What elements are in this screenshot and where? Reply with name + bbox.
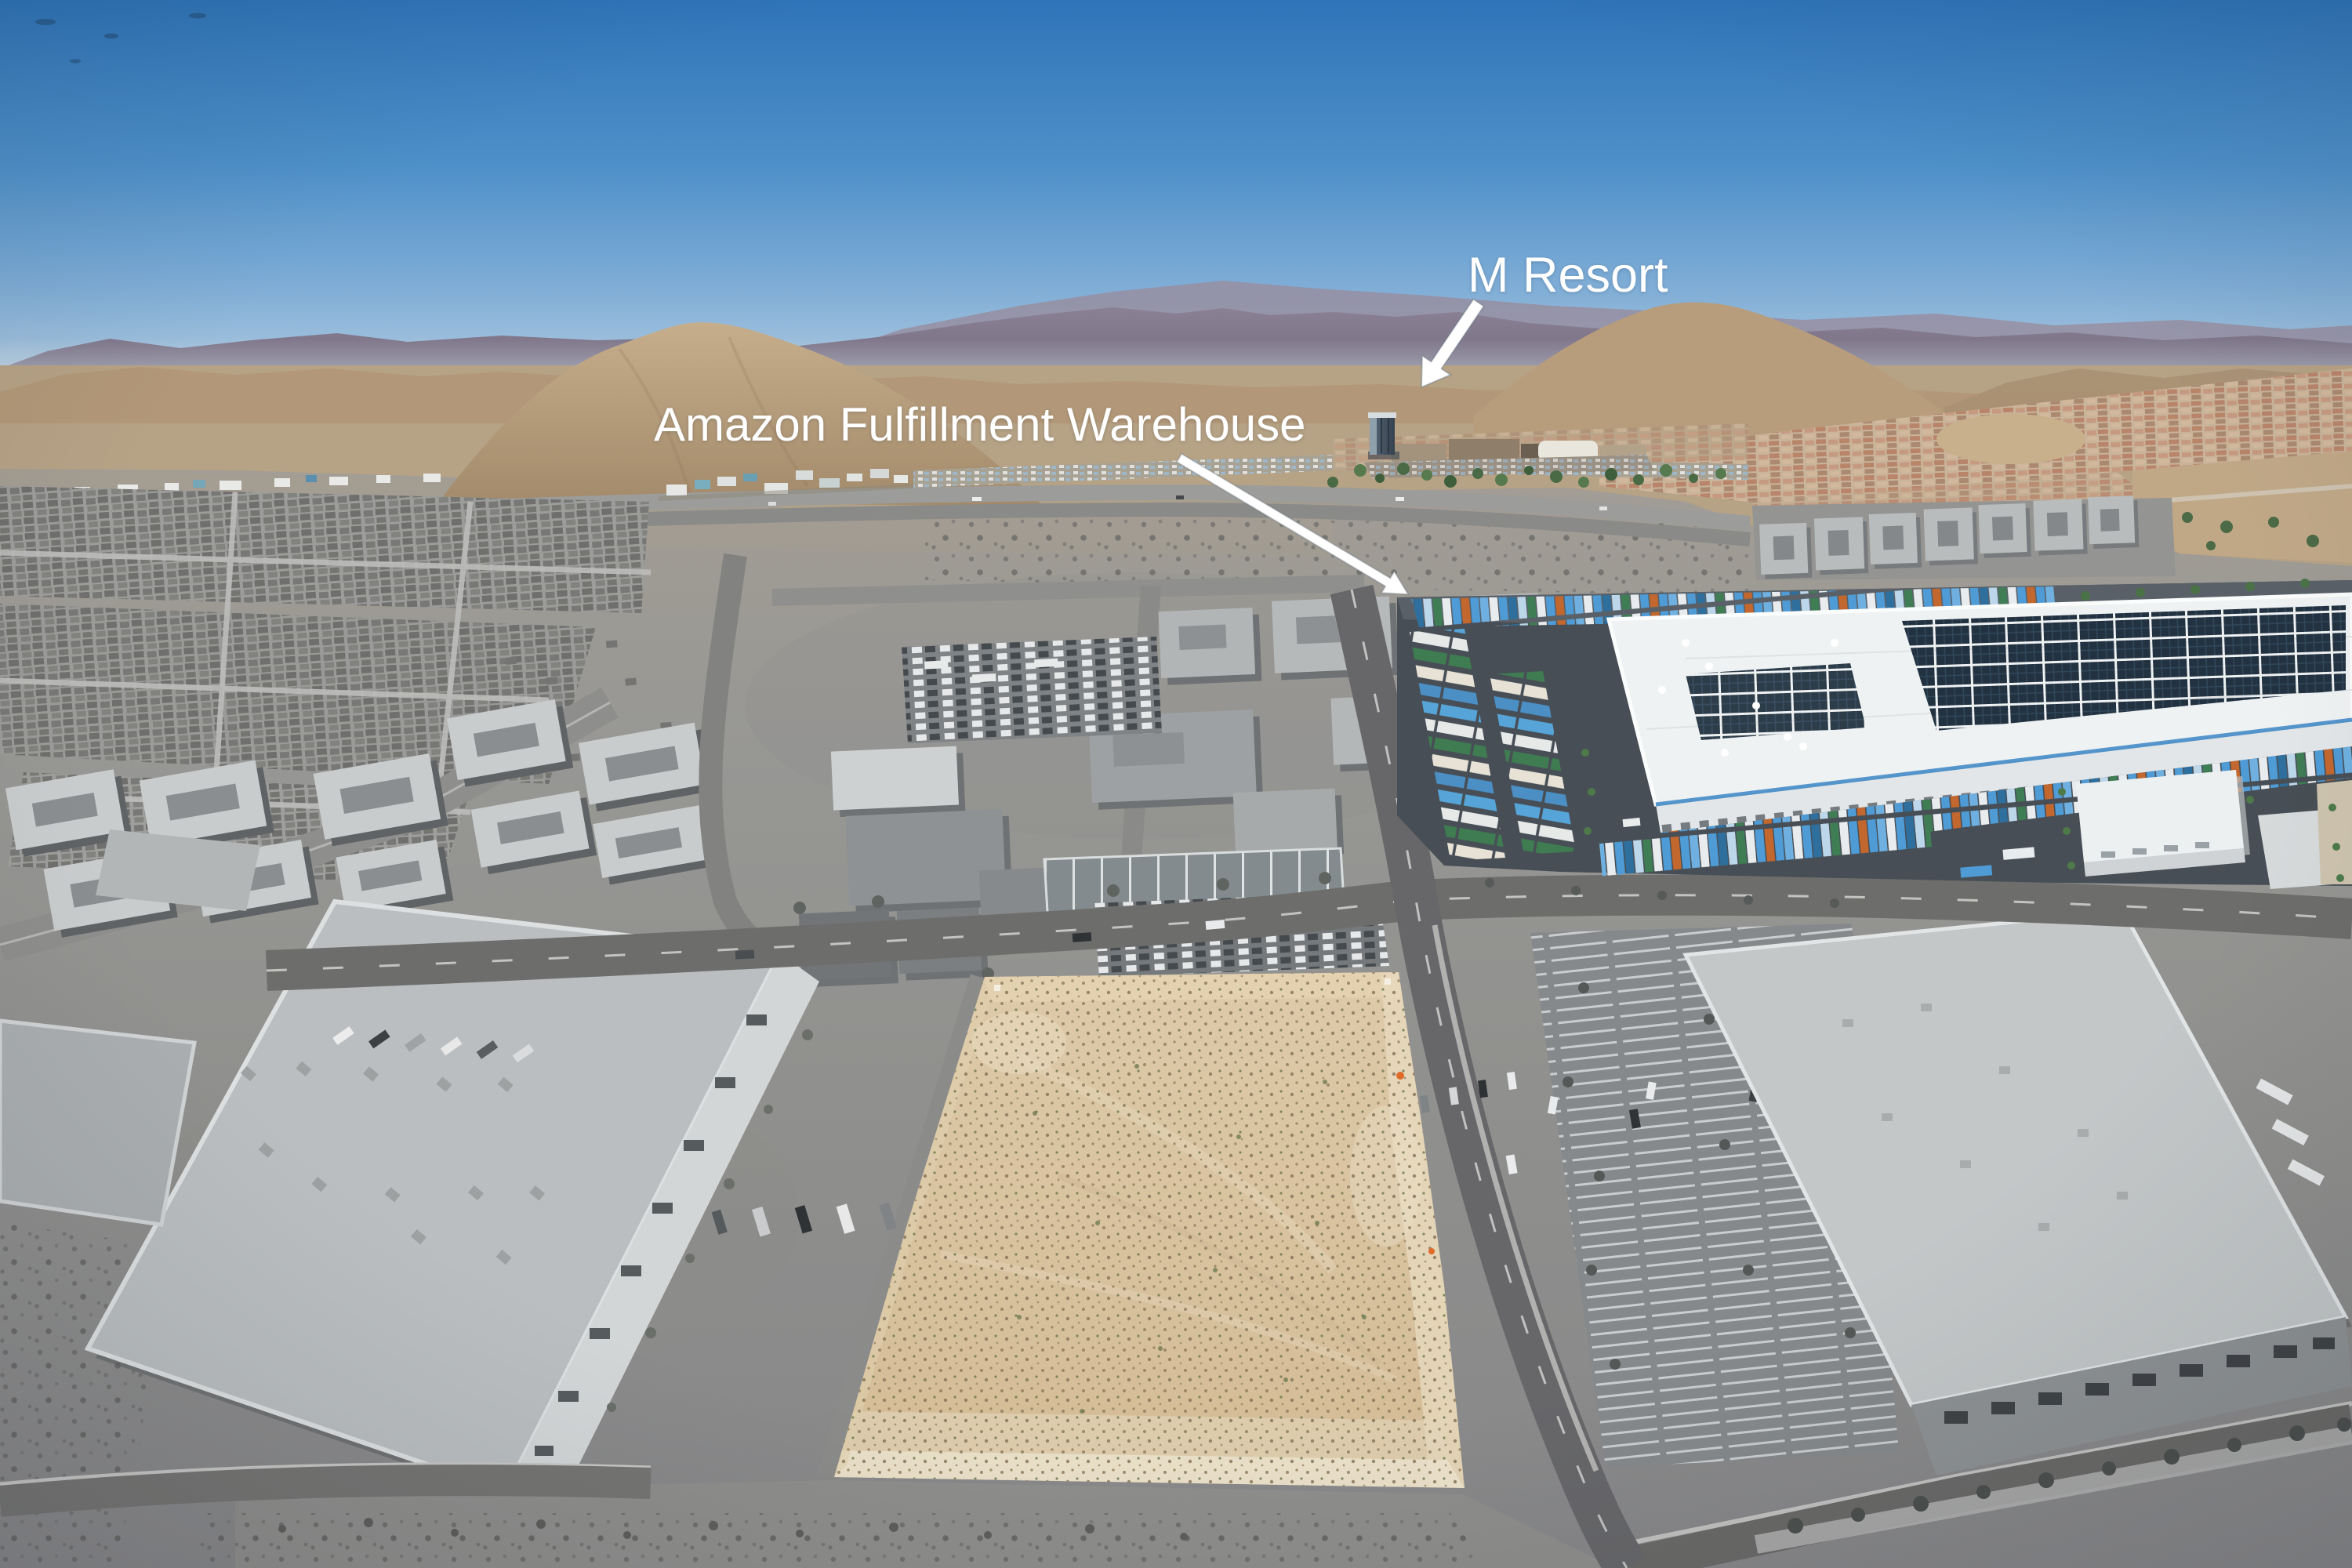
amazon-warehouse-label: Amazon Fulfillment Warehouse <box>654 401 1305 448</box>
aerial-photo: Amazon Fulfillment Warehouse M Resort <box>0 0 2352 1568</box>
vignette <box>0 0 2352 1568</box>
aerial-scene <box>0 0 2352 1568</box>
m-resort-label: M Resort <box>1468 251 1668 300</box>
